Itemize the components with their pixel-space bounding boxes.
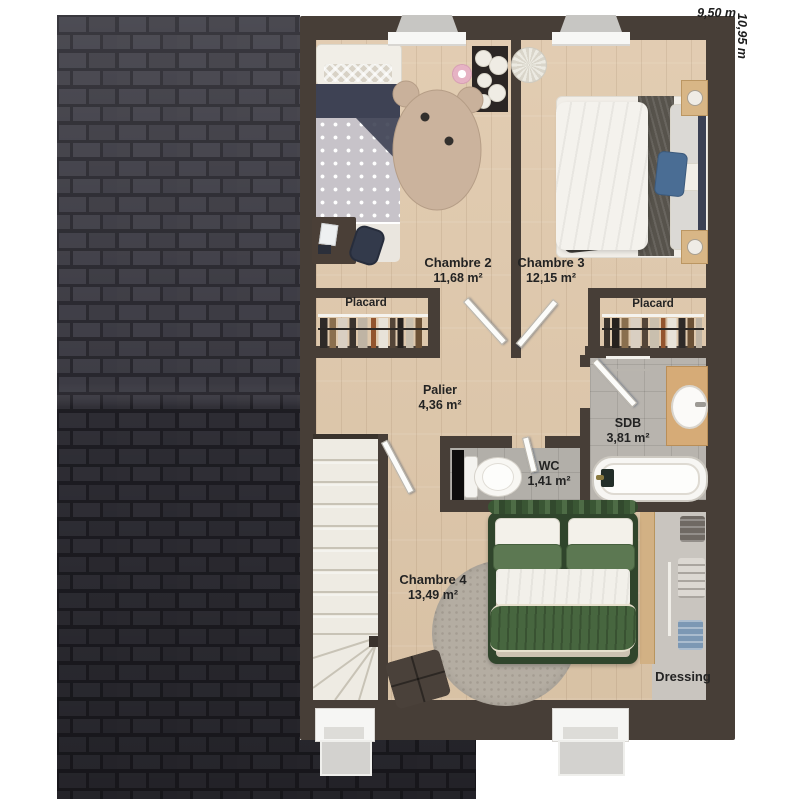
roof-window-top-1 <box>396 15 458 32</box>
bathtub-basin <box>600 463 700 495</box>
roof-window-body-1 <box>320 740 372 776</box>
room-name: Palier <box>418 383 461 398</box>
bed-duvet <box>496 569 630 605</box>
wall-placardR-top <box>595 288 706 298</box>
stairs-top-edge <box>313 434 378 439</box>
floor-plan: Chambre 2 11,68 m² Chambre 3 12,15 m² Pl… <box>0 0 800 800</box>
hanging-clothes <box>320 318 426 348</box>
bath-tap <box>596 475 604 480</box>
label-chambre4: Chambre 4 13,49 m² <box>399 572 466 603</box>
closet-shelf <box>602 314 704 317</box>
wall-wc-top-left <box>440 436 512 448</box>
label-chambre3: Chambre 3 12,15 m² <box>517 255 584 286</box>
bathtub <box>592 456 708 502</box>
label-placard-left: Placard <box>345 297 387 311</box>
roof-window-bottom-1 <box>315 708 375 742</box>
pendant-lamp <box>511 47 547 83</box>
desk-book <box>318 245 331 254</box>
room-area: 13,49 m² <box>399 588 466 603</box>
wall-sdb-wc <box>580 408 590 512</box>
room-name: Chambre 3 <box>517 255 584 271</box>
bed-throw <box>490 604 636 652</box>
clothes-stack <box>678 620 703 650</box>
wall-sdb-left-stub <box>580 355 590 367</box>
window-inner <box>324 727 364 739</box>
sink-vanity <box>666 366 708 446</box>
towel-stack <box>678 558 705 598</box>
closet-rod <box>602 328 704 330</box>
wc-panel <box>452 450 464 500</box>
bed-pillow-pattern <box>324 64 392 82</box>
sink <box>671 385 708 429</box>
placard-right-clothes <box>602 314 704 348</box>
window-inner <box>563 727 618 739</box>
bed-duvet-navy <box>316 84 400 118</box>
label-dressing: Dressing <box>655 669 711 685</box>
roof-window-sill-2 <box>552 32 630 46</box>
bed-accent-pillow <box>654 151 688 198</box>
teddy-bear-rug <box>390 78 486 214</box>
closet-shelf <box>318 314 428 317</box>
closet-rod <box>318 328 428 330</box>
room-name: Placard <box>632 298 674 312</box>
toilet-seat <box>482 463 514 491</box>
room-area: 11,68 m² <box>424 271 491 286</box>
label-placard-right: Placard <box>632 298 674 312</box>
dressing-wood-panel <box>640 512 655 664</box>
placard-left-clothes <box>318 314 428 348</box>
label-chambre2: Chambre 2 11,68 m² <box>424 255 491 286</box>
label-sdb: SDB 3,81 m² <box>606 416 649 446</box>
towel-rail <box>606 356 650 371</box>
headboard-garland <box>488 500 638 514</box>
dimension-width: 9,50 m <box>660 6 736 20</box>
bed-green-pillow <box>566 544 635 571</box>
bed-green-pillow <box>493 544 562 571</box>
toilet <box>464 455 522 497</box>
room-name: SDB <box>606 416 649 431</box>
label-wc: WC 1,41 m² <box>527 459 570 489</box>
desk-paper <box>319 223 339 246</box>
room-name: Chambre 2 <box>424 255 491 271</box>
roof-window-bottom-2 <box>552 708 629 742</box>
bed-duvet <box>556 102 648 250</box>
wall-ch2-ch3 <box>511 40 521 358</box>
wall-wc-top-right <box>545 436 580 448</box>
double-bed-ch4 <box>488 512 638 664</box>
staircase <box>313 438 378 700</box>
room-area: 4,36 m² <box>418 398 461 413</box>
room-name: WC <box>527 459 570 474</box>
table-lamp <box>687 239 703 255</box>
dressing-rail <box>668 562 671 636</box>
faucet <box>695 402 706 407</box>
hanging-clothes <box>604 318 702 348</box>
label-palier: Palier 4,36 m² <box>418 383 461 413</box>
room-area: 3,81 m² <box>606 431 649 446</box>
roof-window-body-2 <box>558 740 625 776</box>
roof-window-sill-1 <box>388 32 466 46</box>
room-name: Dressing <box>655 669 711 685</box>
clothes-stack <box>680 516 705 542</box>
room-area: 1,41 m² <box>527 474 570 489</box>
room-name: Chambre 4 <box>399 572 466 588</box>
nightstand <box>681 230 708 264</box>
table-lamp <box>687 90 703 106</box>
room-name: Placard <box>345 297 387 311</box>
wall-stairs <box>378 434 388 700</box>
room-area: 12,15 m² <box>517 271 584 286</box>
roof-window-top-2 <box>560 15 622 32</box>
plush-toy <box>489 56 508 75</box>
nightstand <box>681 80 708 116</box>
dimension-height: 10,95 m <box>735 13 749 59</box>
